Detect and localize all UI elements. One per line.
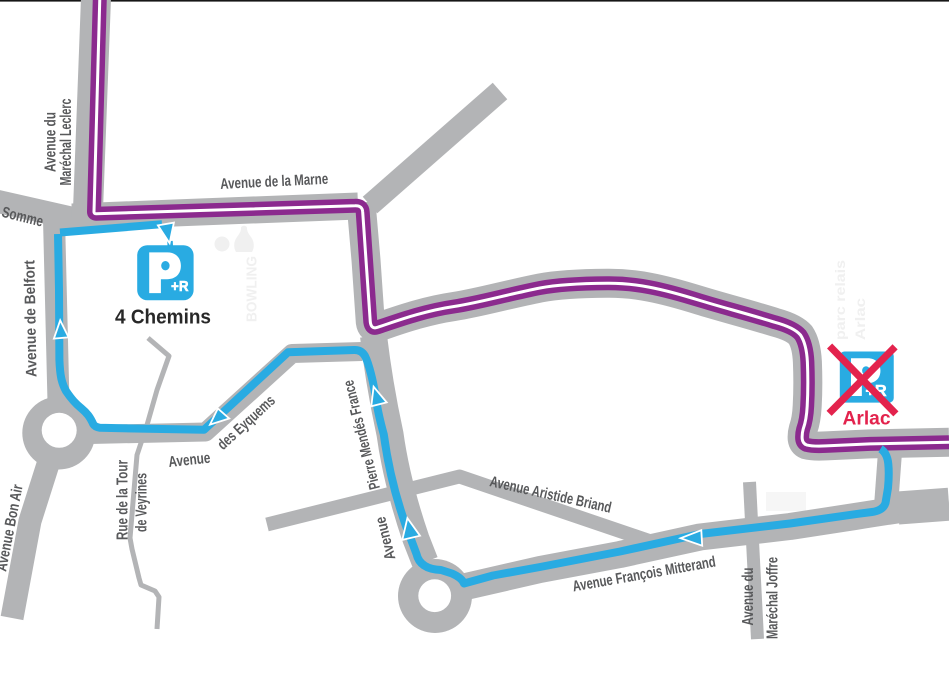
svg-text:+R: +R [171, 279, 189, 295]
svg-text:de Veyrines: de Veyrines [134, 473, 151, 532]
svg-text:Avenue de Belfort: Avenue de Belfort [21, 260, 40, 377]
svg-text:Arlac: Arlac [853, 297, 868, 340]
svg-text:Arlac: Arlac [843, 408, 891, 430]
svg-text:parc relais: parc relais [833, 260, 848, 340]
svg-text:Maréchal Joffre: Maréchal Joffre [765, 557, 782, 639]
svg-text:Avenue du: Avenue du [43, 112, 60, 172]
svg-text:BOWLING: BOWLING [245, 256, 261, 322]
svg-text:Avenue du: Avenue du [740, 568, 757, 626]
svg-text:Maréchal Leclerc: Maréchal Leclerc [58, 98, 75, 185]
svg-text:Rue de la Tour: Rue de la Tour [115, 460, 132, 540]
svg-text:4 Chemins: 4 Chemins [115, 307, 211, 329]
